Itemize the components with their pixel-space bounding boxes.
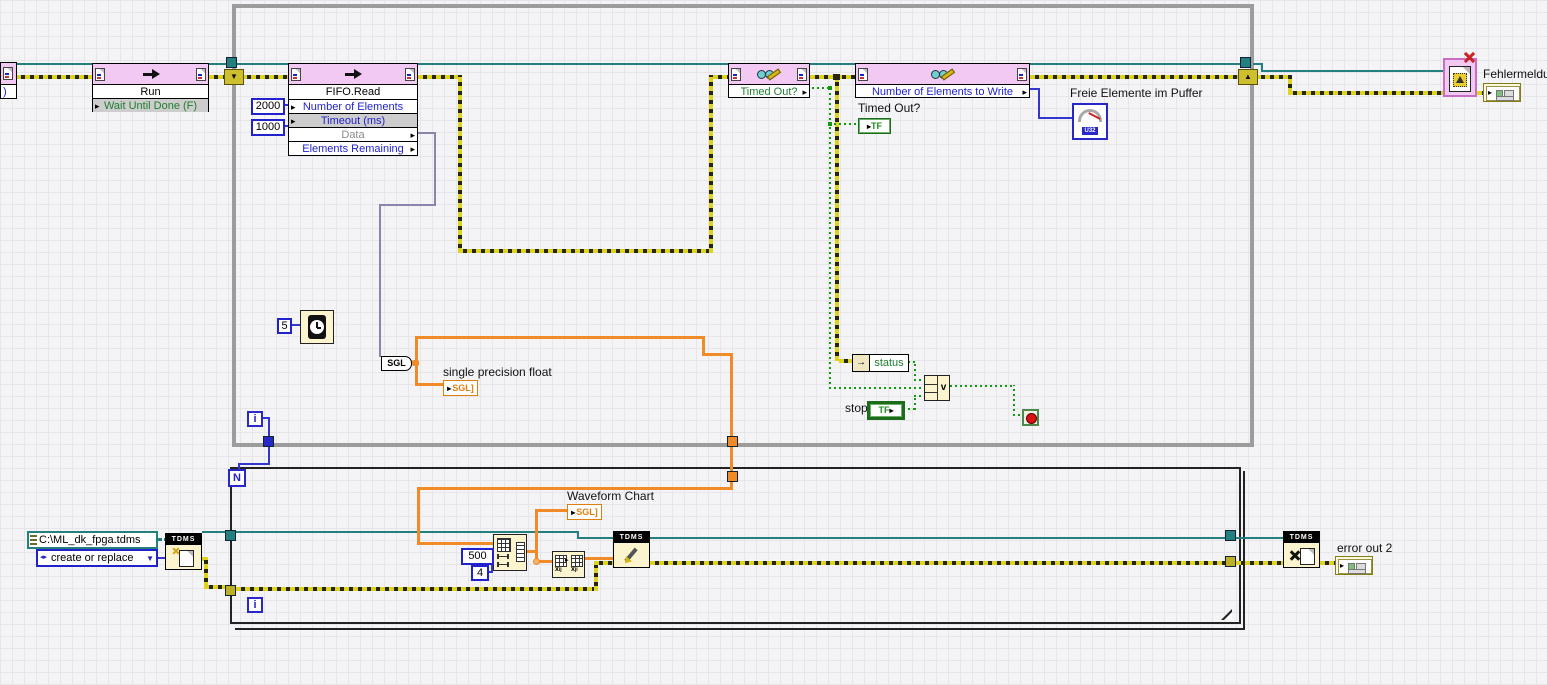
close-fpga-reference-node[interactable] bbox=[1443, 58, 1477, 97]
error-out-2-indicator[interactable]: ▸ bbox=[1335, 556, 1373, 575]
tdms-ref-wire[interactable] bbox=[577, 537, 614, 539]
file-path-text: C:\ML_dk_fpga.tdms bbox=[39, 533, 141, 547]
to-sgl-convert-node[interactable]: SGL bbox=[381, 356, 412, 371]
gauge-label: Freie Elemente im Puffer bbox=[1070, 86, 1203, 100]
array-grid-icon bbox=[497, 538, 511, 552]
sgl-wire[interactable] bbox=[415, 336, 705, 339]
sgl-wire[interactable] bbox=[538, 509, 567, 512]
error-wire[interactable] bbox=[458, 249, 713, 253]
dimension-input-icon bbox=[497, 562, 509, 567]
error-wire[interactable] bbox=[458, 75, 462, 253]
scalar-wire[interactable] bbox=[1038, 88, 1040, 119]
timed-out-property-node[interactable]: Timed Out? bbox=[728, 63, 810, 98]
sgl-wire[interactable] bbox=[417, 487, 420, 545]
invoke-method-icon bbox=[343, 69, 363, 79]
fifo-data-wire[interactable] bbox=[379, 204, 381, 357]
tunnel-iteration-out[interactable] bbox=[263, 436, 274, 447]
fehlermeldung-label: Fehlermeldung bbox=[1483, 67, 1547, 81]
wait-ms-constant[interactable]: 5 bbox=[277, 318, 292, 334]
error-wire[interactable] bbox=[713, 75, 728, 79]
free-elements-gauge[interactable]: U32 bbox=[1072, 103, 1108, 140]
open-mode-text: create or replace bbox=[51, 551, 134, 565]
single-precision-datatype: SGL] bbox=[452, 383, 474, 393]
boolean-wire-junction bbox=[828, 86, 832, 90]
boolean-wire[interactable] bbox=[914, 379, 924, 381]
error-doc-icon bbox=[95, 68, 105, 81]
stop-sign-icon bbox=[1026, 413, 1037, 424]
error-wire[interactable] bbox=[1256, 75, 1290, 79]
for-loop-shadow-bottom bbox=[235, 628, 1243, 630]
error-doc-icon bbox=[797, 68, 807, 81]
error-wire[interactable] bbox=[709, 75, 713, 253]
tdms-ref-wire[interactable] bbox=[650, 537, 1226, 539]
fifo-read-header bbox=[289, 64, 417, 85]
watch-icon bbox=[308, 315, 326, 339]
sgl-wire-junction bbox=[533, 558, 540, 565]
error-wire[interactable] bbox=[1288, 91, 1443, 95]
error-doc-icon bbox=[1017, 68, 1027, 81]
fifo-data-wire[interactable] bbox=[434, 132, 436, 206]
unbundle-by-name-node[interactable]: → status bbox=[852, 354, 909, 372]
iteration-wire[interactable] bbox=[238, 463, 270, 465]
fifo-read-invoke-node[interactable]: FIFO.Read Number of Elements Timeout (ms… bbox=[288, 63, 418, 156]
for-iteration-terminal[interactable]: i bbox=[247, 597, 263, 613]
boolean-wire[interactable] bbox=[914, 395, 924, 397]
run-invoke-title: Run bbox=[93, 85, 208, 99]
timed-out-property-header bbox=[729, 64, 809, 85]
sgl-wire[interactable] bbox=[730, 447, 733, 472]
timeout-constant[interactable]: 1000 bbox=[251, 119, 285, 136]
error-cluster-glyph: ▸ bbox=[1338, 559, 1372, 574]
file-path-constant[interactable]: C:\ML_dk_fpga.tdms bbox=[27, 531, 158, 549]
fifo-read-title: FIFO.Read bbox=[289, 85, 417, 99]
reshape-dim2-constant[interactable]: 4 bbox=[471, 565, 489, 581]
stop-control[interactable]: TF▸ bbox=[868, 402, 904, 419]
tdms-open-header: TDMS bbox=[166, 534, 201, 545]
for-count-terminal[interactable]: N bbox=[228, 469, 246, 487]
boolean-wire[interactable] bbox=[914, 397, 916, 410]
arrow-icon: ▸ bbox=[565, 556, 569, 564]
error-doc-icon bbox=[3, 67, 13, 80]
shift-register-right-icon[interactable]: ▲ bbox=[1238, 69, 1258, 85]
xji-glyph: xji bbox=[571, 566, 578, 573]
sgl-wire[interactable] bbox=[417, 542, 493, 545]
error-doc-icon bbox=[731, 68, 741, 81]
vi-doc-icon bbox=[1449, 66, 1471, 92]
run-param-wait-until-done[interactable]: Wait Until Done (F) bbox=[93, 98, 208, 112]
shift-register-left-icon[interactable]: ▼ bbox=[224, 69, 244, 85]
error-wire[interactable] bbox=[16, 75, 92, 79]
labview-block-diagram: { "diagram": { "while_loop": { "iteratio… bbox=[0, 0, 1547, 685]
or-symbol: v bbox=[938, 380, 949, 396]
stop-control-label: stop bbox=[845, 401, 868, 415]
tdms-ref-wire[interactable] bbox=[202, 531, 226, 533]
error-doc-icon bbox=[405, 68, 415, 81]
tdms-close-header: TDMS bbox=[1284, 532, 1319, 543]
sgl-wire-junction bbox=[412, 360, 419, 366]
fifo-param-elements-remaining[interactable]: Elements Remaining bbox=[289, 141, 417, 155]
fifo-param-data[interactable]: Data bbox=[289, 127, 417, 141]
error-wire[interactable] bbox=[204, 557, 208, 587]
boolean-wire[interactable] bbox=[829, 123, 858, 125]
boolean-wire[interactable] bbox=[914, 361, 916, 381]
dropdown-arrow-icon[interactable]: ▼ bbox=[146, 552, 154, 566]
enum-arrows-icon: ◂▸ bbox=[40, 551, 47, 565]
glasses-pencil-icon bbox=[930, 68, 956, 80]
tdms-open-node[interactable]: TDMS bbox=[165, 533, 202, 570]
fpga-ref-wire[interactable] bbox=[1261, 70, 1445, 72]
timed-out-value: TF bbox=[871, 121, 882, 131]
waveform-chart-label: Waveform Chart bbox=[567, 489, 654, 503]
array-column-icon bbox=[516, 542, 525, 562]
boolean-wire[interactable] bbox=[829, 123, 831, 389]
run-invoke-node[interactable]: Run Wait Until Done (F) bbox=[92, 63, 209, 112]
error-wire[interactable] bbox=[1320, 561, 1336, 565]
tdms-ref-wire[interactable] bbox=[1236, 537, 1284, 539]
tunnel-fpga-ref-in[interactable] bbox=[226, 57, 237, 68]
error-wire[interactable] bbox=[1030, 75, 1238, 79]
gauge-arc-icon bbox=[1078, 109, 1102, 122]
wait-ms-function[interactable] bbox=[300, 310, 334, 344]
error-cluster-glyph: ▸ bbox=[1486, 86, 1520, 101]
error-wire[interactable] bbox=[650, 561, 1226, 565]
boolean-wire-junction bbox=[828, 122, 832, 126]
edge-invoke-text: ) bbox=[1, 85, 16, 98]
reshape-dim1-constant[interactable]: 500 bbox=[461, 548, 494, 565]
sgl-wire[interactable] bbox=[535, 509, 538, 552]
sgl-wire[interactable] bbox=[415, 383, 443, 386]
tdms-file-new-icon bbox=[179, 550, 194, 567]
error-out-2-label: error out 2 bbox=[1337, 541, 1392, 555]
sgl-wire[interactable] bbox=[585, 557, 613, 560]
error-wire[interactable] bbox=[418, 75, 462, 79]
or-function-node[interactable]: v bbox=[924, 375, 950, 401]
open-mode-enum-constant[interactable]: ◂▸ create or replace ▼ bbox=[36, 549, 158, 567]
boolean-wire[interactable] bbox=[829, 87, 831, 125]
error-wire[interactable] bbox=[1236, 561, 1284, 565]
unbundle-arrow-icon: → bbox=[853, 355, 870, 371]
run-invoke-header bbox=[93, 64, 208, 85]
tdms-close-node[interactable]: TDMS bbox=[1283, 531, 1320, 568]
elements-to-write-param[interactable]: Number of Elements to Write bbox=[856, 85, 1029, 98]
error-wire[interactable] bbox=[594, 561, 598, 591]
error-doc-icon bbox=[858, 68, 868, 81]
sgl-wire[interactable] bbox=[702, 353, 733, 356]
edge-invoke-node[interactable]: ) bbox=[0, 62, 17, 99]
error-wire-branch[interactable] bbox=[835, 75, 839, 361]
elements-to-write-property-node[interactable]: Number of Elements to Write bbox=[855, 63, 1030, 98]
tunnel-sgl-in[interactable] bbox=[727, 471, 738, 482]
dimension-input-icon bbox=[497, 554, 509, 559]
reshape-array-node[interactable] bbox=[493, 534, 527, 571]
error-wire[interactable] bbox=[242, 75, 288, 79]
timed-out-property-param[interactable]: Timed Out? bbox=[729, 85, 809, 98]
tunnel-error-in[interactable] bbox=[225, 585, 236, 596]
tunnel-tdms-ref-out[interactable] bbox=[1225, 530, 1236, 541]
while-iteration-terminal[interactable]: i bbox=[247, 411, 263, 427]
unbundle-field-status[interactable]: status bbox=[870, 355, 908, 371]
timed-out-indicator[interactable]: ▸TF bbox=[858, 118, 891, 134]
fifo-param-timeout[interactable]: Timeout (ms) bbox=[289, 113, 417, 127]
number-of-elements-constant[interactable]: 2000 bbox=[251, 98, 285, 115]
error-doc-icon bbox=[196, 68, 206, 81]
single-precision-indicator[interactable]: SGL] bbox=[443, 380, 478, 396]
invoke-method-icon bbox=[141, 69, 161, 79]
tdms-write-node[interactable]: TDMS bbox=[613, 531, 650, 568]
error-wire[interactable] bbox=[204, 585, 226, 589]
single-precision-label: single precision float bbox=[443, 365, 552, 379]
tdms-write-header: TDMS bbox=[614, 532, 649, 543]
error-wire-branch[interactable] bbox=[839, 359, 852, 363]
waveform-chart-indicator[interactable]: SGL] bbox=[567, 504, 602, 520]
glasses-pencil-icon bbox=[756, 68, 782, 80]
loop-condition-terminal[interactable] bbox=[1022, 409, 1039, 426]
tunnel-error-out[interactable] bbox=[1225, 556, 1236, 567]
waveform-chart-datatype: SGL] bbox=[576, 507, 598, 517]
fifo-param-number-of-elements[interactable]: Number of Elements bbox=[289, 99, 417, 113]
iteration-wire[interactable] bbox=[268, 417, 270, 436]
transpose-array-node[interactable]: ▸ xij xji bbox=[552, 551, 585, 578]
tdms-ref-wire[interactable] bbox=[236, 531, 577, 533]
fifo-data-wire[interactable] bbox=[379, 204, 436, 206]
sgl-wire[interactable] bbox=[415, 336, 418, 363]
error-doc-icon bbox=[291, 68, 301, 81]
tdms-file-icon bbox=[1300, 548, 1315, 565]
tunnel-fpga-ref-out[interactable] bbox=[1240, 57, 1251, 68]
timed-out-indicator-label: Timed Out? bbox=[858, 101, 920, 115]
for-loop-shadow-right bbox=[1243, 471, 1245, 630]
for-loop-border[interactable] bbox=[230, 467, 1241, 624]
stop-value: TF bbox=[878, 405, 889, 415]
boolean-wire[interactable] bbox=[1013, 385, 1015, 416]
for-loop-grow-handle-fill bbox=[1224, 612, 1232, 620]
xij-glyph: xij bbox=[555, 566, 562, 573]
elements-to-write-header bbox=[856, 64, 1029, 85]
boolean-wire[interactable] bbox=[950, 385, 1015, 387]
tunnel-tdms-ref-in[interactable] bbox=[225, 530, 236, 541]
edge-invoke-header bbox=[1, 63, 16, 85]
scalar-wire[interactable] bbox=[1038, 117, 1072, 119]
path-icon bbox=[30, 535, 37, 545]
error-wire[interactable] bbox=[594, 561, 614, 565]
error-wire[interactable] bbox=[236, 587, 598, 591]
boolean-wire[interactable] bbox=[829, 387, 924, 389]
sgl-wire[interactable] bbox=[730, 353, 733, 437]
gauge-datatype-badge: U32 bbox=[1082, 127, 1098, 135]
tunnel-sgl-out[interactable] bbox=[727, 436, 738, 447]
fehlermeldung-indicator[interactable]: ▸ bbox=[1483, 83, 1521, 102]
error-wire-junction bbox=[833, 74, 840, 80]
